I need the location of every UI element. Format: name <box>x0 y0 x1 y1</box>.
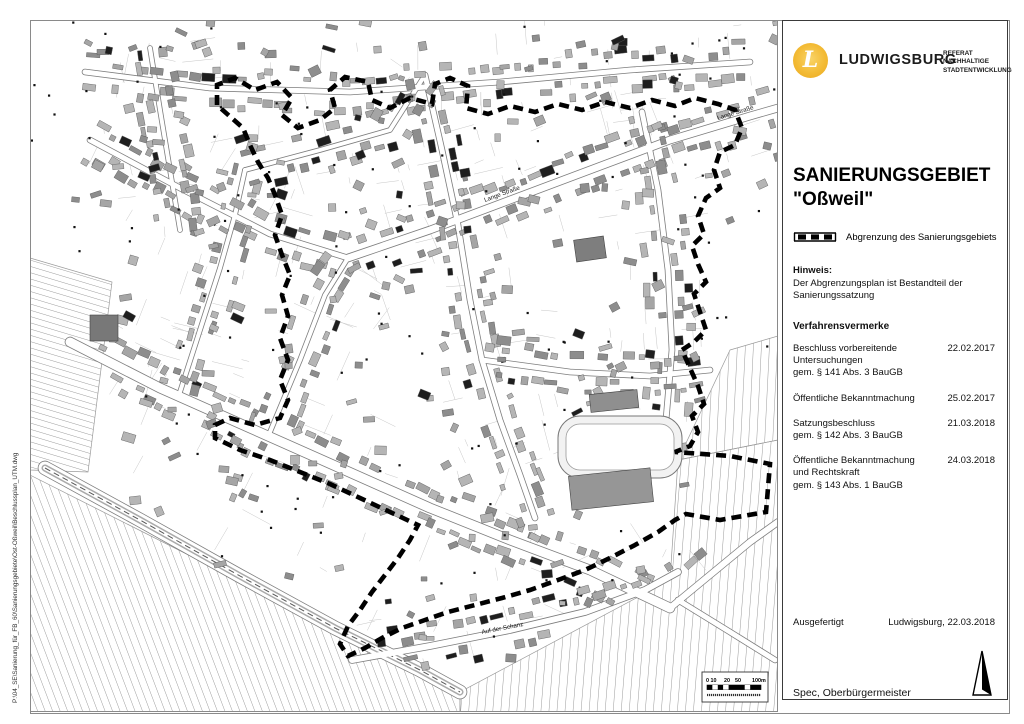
legend-label: Abgrenzung des Sanierungsgebiets <box>846 232 997 243</box>
verfahrensvermerke-list: Beschluss vorbereitende Untersuchungen g… <box>793 343 995 505</box>
entry-line: Öffentliche Bekanntmachung <box>793 455 915 467</box>
header-row: L LUDWIGSBURG REFERAT NACHHALTIGE STADTE… <box>793 43 1001 83</box>
entry-line: gem. § 142 Abs. 3 BauGB <box>793 430 903 442</box>
entry-line: Öffentliche Bekanntmachung <box>793 393 915 405</box>
svg-text:0 10: 0 10 <box>706 678 717 684</box>
entry-line: Untersuchungen <box>793 355 903 367</box>
entry-line: Beschluss vorbereitende <box>793 343 903 355</box>
svg-text:50: 50 <box>735 678 741 684</box>
entry-date: 25.02.2017 <box>947 393 995 405</box>
north-arrow-icon <box>971 649 993 697</box>
entry-line: Satzungsbeschluss <box>793 418 903 430</box>
hinweis-heading: Hinweis: <box>793 265 993 278</box>
entry-text: Öffentliche Bekanntmachung <box>793 393 915 405</box>
svg-text:100m: 100m <box>752 678 766 684</box>
entry-text: Öffentliche Bekanntmachung und Rechtskra… <box>793 455 915 492</box>
verfahren-entry: Beschluss vorbereitende Untersuchungen g… <box>793 343 995 380</box>
plan-sheet: Lange StraßeLange StraßeAuf der Schanz0 … <box>0 0 1024 724</box>
plan-title: SANIERUNGSGEBIET "Oßweil" <box>793 164 990 212</box>
ausfertigung-row: Ausgefertigt Ludwigsburg, 22.03.2018 <box>793 617 995 628</box>
plan-title-line1: SANIERUNGSGEBIET <box>793 164 990 188</box>
entry-line: und Rechtskraft <box>793 467 915 479</box>
logo-glyph: L <box>803 49 818 71</box>
hinweis-block: Hinweis: Der Abgrenzungsplan ist Bestand… <box>793 265 993 303</box>
department-block: REFERAT NACHHALTIGE STADTENTWICKLUNG <box>943 50 1012 75</box>
verfahren-entry: Satzungsbeschluss gem. § 142 Abs. 3 BauG… <box>793 418 995 442</box>
scale-bar: 0 102050100m <box>702 672 768 702</box>
entry-date: 22.02.2017 <box>947 343 995 380</box>
title-block-panel: L LUDWIGSBURG REFERAT NACHHALTIGE STADTE… <box>782 20 1008 700</box>
dept-line: STADTENTWICKLUNG <box>943 67 1012 75</box>
dept-line: NACHHALTIGE <box>943 58 1012 66</box>
ausfertigung-value: Ludwigsburg, 22.03.2018 <box>888 617 995 628</box>
boundary-legend-icon <box>793 231 837 243</box>
entry-line: gem. § 141 Abs. 3 BauGB <box>793 367 903 379</box>
verfahren-entry: Öffentliche Bekanntmachung 25.02.2017 <box>793 393 995 405</box>
svg-text:20: 20 <box>724 678 730 684</box>
entry-text: Satzungsbeschluss gem. § 142 Abs. 3 BauG… <box>793 418 903 442</box>
verfahren-entry: Öffentliche Bekanntmachung und Rechtskra… <box>793 455 995 492</box>
city-map: Lange StraßeLange StraßeAuf der Schanz0 … <box>30 20 778 712</box>
cadastral-map-svg: Lange StraßeLange StraßeAuf der Schanz0 … <box>30 20 778 712</box>
entry-date: 24.03.2018 <box>947 455 995 492</box>
entry-date: 21.03.2018 <box>947 418 995 442</box>
dept-line: REFERAT <box>943 50 1012 58</box>
plan-title-line2: "Oßweil" <box>793 188 990 212</box>
ausfertigung-label: Ausgefertigt <box>793 617 844 628</box>
verfahrensvermerke-heading: Verfahrensvermerke <box>793 321 889 332</box>
ludwigsburg-logo-icon: L <box>793 43 828 78</box>
signature-line: Spec, Oberbürgermeister <box>793 687 911 699</box>
city-name: LUDWIGSBURG <box>839 52 957 68</box>
hinweis-text: Der Abgrenzungsplan ist Bestandteil der … <box>793 278 993 303</box>
legend: Abgrenzung des Sanierungsgebiets <box>793 231 997 243</box>
entry-line: gem. § 143 Abs. 1 BauGB <box>793 480 915 492</box>
entry-text: Beschluss vorbereitende Untersuchungen g… <box>793 343 903 380</box>
file-path-note: P:\04_SE\Sanierung_für_FB_60\Sanierungsg… <box>12 283 19 703</box>
